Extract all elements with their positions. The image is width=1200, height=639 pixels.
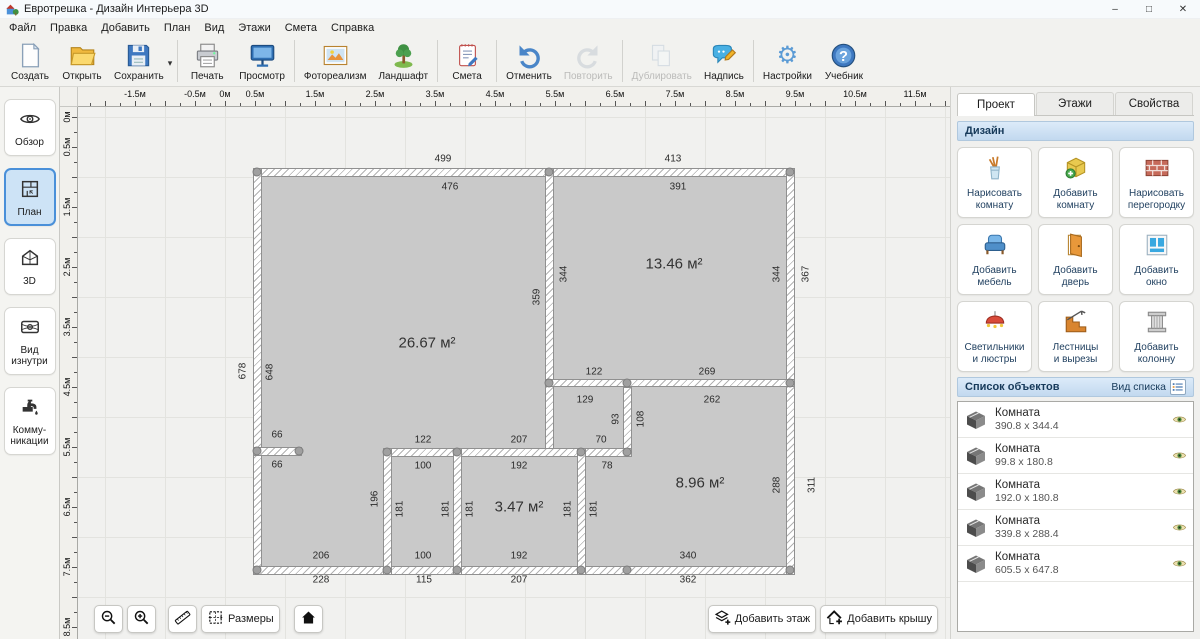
add-floor-button[interactable]: Добавить этаж	[708, 605, 816, 633]
ruler-label: 10.5м	[843, 89, 867, 99]
sidebar-item-3d-label: 3D	[23, 276, 36, 288]
minimize-button[interactable]: –	[1098, 0, 1132, 18]
design-section-header: Дизайн	[957, 121, 1194, 141]
duplicate-button: Дублировать	[626, 40, 698, 83]
column-icon	[1144, 309, 1170, 338]
ruler-label: 2.5м	[62, 258, 72, 277]
ruler-label: 1.5м	[306, 89, 325, 99]
menu-item-2[interactable]: Добавить	[94, 21, 157, 35]
wall-handle[interactable]	[623, 448, 632, 457]
dimension-label: 181	[395, 501, 406, 518]
ruler-horizontal: -1.5м-0.5м0м0.5м1.5м2.5м3.5м4.5м5.5м6.5м…	[78, 87, 950, 107]
dimension-label: 181	[465, 501, 476, 518]
menu-item-7[interactable]: Справка	[324, 21, 381, 35]
dimension-label: 192	[511, 551, 528, 562]
print-button-label: Печать	[191, 71, 224, 82]
dimension-label: 196	[370, 491, 381, 508]
dimension-label: 206	[313, 551, 330, 562]
design-buttons: НарисоватькомнатуДобавитькомнатуНарисова…	[957, 147, 1194, 372]
plan-canvas[interactable]: 4994134763911222691292626612220770661001…	[60, 87, 950, 639]
toolbar-separator	[753, 40, 754, 82]
faucet-icon	[19, 396, 41, 421]
wall-handle[interactable]	[383, 566, 392, 575]
room-object-icon	[964, 480, 988, 504]
wall-handle[interactable]	[253, 168, 262, 177]
object-list: Комната390.8 x 344.4Комната99.8 x 180.8К…	[957, 401, 1194, 632]
undo-icon	[515, 42, 543, 70]
wall[interactable]	[577, 448, 586, 575]
stairs-icon	[1063, 309, 1089, 338]
landscape-button-label: Ландшафт	[378, 71, 428, 82]
add-room-icon	[1063, 155, 1089, 184]
ruler-label: 3.5м	[62, 318, 72, 337]
ruler-label: 4.5м	[486, 89, 505, 99]
object-list-item[interactable]: Комната605.5 x 647.8	[958, 546, 1193, 582]
svg-text:?: ?	[839, 49, 848, 65]
dimension-label: 359	[532, 289, 543, 306]
room-area-label: 3.47 м²	[495, 499, 544, 516]
add-door-button[interactable]: Добавитьдверь	[1038, 224, 1113, 295]
wall-handle[interactable]	[577, 566, 586, 575]
ruler-label: 6.5м	[62, 498, 72, 517]
menu-item-6[interactable]: Смета	[278, 21, 324, 35]
object-name: Комната	[995, 406, 1172, 420]
app-icon	[6, 3, 19, 16]
object-list-item[interactable]: Комната339.8 x 288.4	[958, 510, 1193, 546]
dimension-label: 476	[442, 182, 459, 193]
dimension-label: 129	[577, 395, 594, 406]
list-view-icon[interactable]	[1170, 379, 1186, 395]
object-dimensions: 339.8 x 288.4	[995, 528, 1172, 541]
add-floor-icon	[714, 609, 731, 629]
add-door-button-label: Добавитьдверь	[1053, 265, 1097, 289]
tab-floors[interactable]: Этажи	[1036, 92, 1114, 115]
objects-title: Список объектов	[965, 381, 1059, 393]
dimension-label: 70	[595, 435, 606, 446]
tab-properties[interactable]: Свойства	[1115, 92, 1193, 115]
dimension-label: 181	[563, 501, 574, 518]
wall-handle[interactable]	[295, 447, 304, 456]
photo-icon	[321, 42, 349, 70]
wall[interactable]	[623, 387, 632, 457]
photorealism-button[interactable]: Фотореализм	[298, 40, 373, 83]
visibility-eye-icon[interactable]	[1172, 484, 1187, 499]
save-button-label: Сохранить	[114, 71, 164, 82]
ruler-button[interactable]	[168, 605, 197, 633]
dimension-label: 115	[416, 575, 432, 586]
object-name: Комната	[995, 478, 1172, 492]
wall-handle[interactable]	[786, 566, 795, 575]
undo-button-label: Отменить	[506, 71, 552, 82]
tutorial-button-label: Учебник	[825, 71, 863, 82]
sidebar-item-communications-label: Комму-никации	[10, 425, 48, 448]
ruler-label: 8.5м	[62, 618, 72, 637]
lights-button[interactable]: Светильникии люстры	[957, 301, 1032, 372]
add-roof-button[interactable]: Добавить крышу	[820, 605, 938, 633]
dimension-label: 344	[772, 266, 783, 283]
room-area-label: 13.46 м²	[645, 256, 702, 273]
zoom-out-icon	[100, 609, 117, 629]
door-icon	[1063, 232, 1089, 261]
room-object-icon	[964, 444, 988, 468]
toolbar-separator	[437, 40, 438, 82]
dimension-label: 192	[511, 461, 528, 472]
ruler-label: 0м	[219, 89, 230, 99]
toolbar-separator	[177, 40, 178, 82]
redo-button: Повторить	[558, 40, 619, 83]
eye-icon	[19, 108, 41, 133]
design-title: Дизайн	[965, 125, 1004, 137]
wall[interactable]	[786, 168, 795, 575]
ruler-label: 11.5м	[903, 89, 926, 99]
dimension-label: 207	[511, 435, 528, 446]
dimension-label: 78	[601, 461, 612, 472]
toolbar-separator	[294, 40, 295, 82]
maximize-button[interactable]: □	[1132, 0, 1166, 18]
title-bar: Евротрешка - Дизайн Интерьера 3D – □ ✕	[0, 0, 1200, 19]
room-object-icon	[964, 408, 988, 432]
add-floor-button-label: Добавить этаж	[735, 613, 810, 625]
dimension-label: 108	[636, 411, 647, 428]
notepad-icon	[453, 42, 481, 70]
dimensions-button[interactable]: Размеры	[201, 605, 280, 633]
ruler-label: 3.5м	[426, 89, 445, 99]
objects-section-header: Список объектов Вид списка	[957, 377, 1194, 397]
wall[interactable]	[253, 168, 795, 177]
view-sidebar: ОбзорПлан3DВидизнутриКомму-никации	[0, 87, 60, 639]
ruler-label: 7.5м	[666, 89, 685, 99]
dimension-label: 93	[611, 413, 622, 424]
label-button[interactable]: Надпись	[698, 40, 750, 83]
visibility-eye-icon[interactable]	[1172, 556, 1187, 571]
dimension-label: 340	[680, 551, 697, 562]
menu-item-0[interactable]: Файл	[2, 21, 43, 35]
object-dimensions: 99.8 x 180.8	[995, 456, 1172, 469]
add-roof-button-label: Добавить крышу	[847, 613, 932, 625]
wall[interactable]	[545, 379, 795, 387]
draw-room-button-label: Нарисоватькомнату	[967, 188, 1022, 212]
add-roof-icon	[826, 609, 843, 629]
open-button-label: Открыть	[62, 71, 101, 82]
room-area-label: 26.67 м²	[398, 335, 455, 352]
wall-handle[interactable]	[623, 566, 632, 575]
sidebar-item-overview[interactable]: Обзор	[4, 99, 56, 156]
wall-handle[interactable]	[545, 168, 554, 177]
dimension-label: 367	[801, 266, 812, 283]
duplicate-button-label: Дублировать	[632, 71, 692, 82]
close-button[interactable]: ✕	[1166, 0, 1200, 18]
save-button[interactable]: Сохранить	[108, 40, 170, 83]
object-dimensions: 605.5 x 647.8	[995, 564, 1172, 577]
dimensions-button-label: Размеры	[228, 613, 274, 625]
right-panel: ПроектЭтажиСвойства Дизайн Нарисоватьком…	[950, 87, 1200, 639]
object-name: Комната	[995, 442, 1172, 456]
lights-button-label: Светильникии люстры	[965, 342, 1025, 366]
wall[interactable]	[253, 168, 262, 575]
interior-icon	[19, 316, 41, 341]
ruler-label: 7.5м	[62, 558, 72, 577]
dimension-label: 678	[238, 363, 249, 380]
window-title: Евротрешка - Дизайн Интерьера 3D	[24, 3, 209, 15]
home-button[interactable]	[294, 605, 323, 633]
add-room-button[interactable]: Добавитькомнату	[1038, 147, 1113, 218]
label-button-label: Надпись	[704, 71, 744, 82]
object-list-item[interactable]: Комната390.8 x 344.4	[958, 402, 1193, 438]
add-furniture-button-label: Добавитьмебель	[972, 265, 1016, 289]
dims-icon	[207, 609, 224, 629]
open-button[interactable]: Открыть	[56, 40, 108, 83]
save-dropdown-arrow[interactable]: ▾	[168, 58, 173, 69]
wall-handle[interactable]	[623, 379, 632, 388]
sidebar-item-plan-label: План	[17, 207, 41, 219]
tree-icon	[389, 42, 417, 70]
create-button[interactable]: Создать	[4, 40, 56, 83]
estimate-button[interactable]: Смета	[441, 40, 493, 83]
dimension-label: 66	[271, 430, 282, 441]
dimension-label: 344	[559, 266, 570, 283]
wall-handle[interactable]	[453, 448, 462, 457]
dimension-label: 181	[441, 501, 452, 518]
dimension-label: 207	[511, 575, 528, 586]
ruler-label: 8.5м	[726, 89, 745, 99]
dimension-label: 122	[415, 435, 432, 446]
dimension-label: 413	[665, 154, 682, 165]
zoom-out-button[interactable]	[94, 605, 123, 633]
menu-item-1[interactable]: Правка	[43, 21, 94, 35]
dimension-label: 100	[415, 461, 432, 472]
toolbar-separator	[496, 40, 497, 82]
open-folder-icon	[68, 42, 96, 70]
dimension-label: 648	[265, 364, 276, 381]
dimension-label: 100	[415, 551, 432, 562]
menu-item-3[interactable]: План	[157, 21, 198, 35]
object-dimensions: 390.8 x 344.4	[995, 420, 1172, 433]
ruler-label: 5.5м	[546, 89, 565, 99]
draw-room-icon	[982, 155, 1008, 184]
printer-icon	[193, 42, 221, 70]
wall-handle[interactable]	[253, 566, 262, 575]
monitor-icon	[248, 42, 276, 70]
object-dimensions: 192.0 x 180.8	[995, 492, 1172, 505]
settings-button[interactable]: ⚙Настройки	[757, 40, 818, 83]
ruler-label: 5.5м	[62, 438, 72, 457]
wall-handle[interactable]	[786, 379, 795, 388]
print-button[interactable]: Печать	[181, 40, 233, 83]
draw-partition-button[interactable]: Нарисоватьперегородку	[1119, 147, 1194, 218]
house3d-icon	[19, 247, 41, 272]
draw-partition-button-label: Нарисоватьперегородку	[1128, 188, 1185, 212]
dimension-label: 362	[680, 575, 697, 586]
note-icon	[710, 42, 738, 70]
wall-handle[interactable]	[253, 447, 262, 456]
chandelier-icon	[982, 309, 1008, 338]
settings-button-label: Настройки	[763, 71, 812, 82]
sidebar-item-communications[interactable]: Комму-никации	[4, 387, 56, 455]
wall[interactable]	[545, 168, 554, 457]
visibility-eye-icon[interactable]	[1172, 448, 1187, 463]
menu-item-5[interactable]: Этажи	[231, 21, 277, 35]
wall[interactable]	[453, 448, 462, 575]
add-column-button[interactable]: Добавитьколонну	[1119, 301, 1194, 372]
wall-handle[interactable]	[545, 379, 554, 388]
object-name: Комната	[995, 550, 1172, 564]
view-list-control[interactable]: Вид списка	[1111, 379, 1186, 395]
preview-button[interactable]: Просмотр	[233, 40, 291, 83]
visibility-eye-icon[interactable]	[1172, 520, 1187, 535]
wall[interactable]	[383, 448, 632, 457]
tab-project[interactable]: Проект	[957, 93, 1035, 116]
add-column-button-label: Добавитьколонну	[1134, 342, 1178, 366]
dimension-label: 269	[699, 367, 716, 378]
landscape-button[interactable]: Ландшафт	[372, 40, 434, 83]
plan-icon	[19, 178, 41, 203]
wall-handle[interactable]	[577, 448, 586, 457]
add-room-button-label: Добавитькомнату	[1053, 188, 1097, 212]
menu-bar: ФайлПравкаДобавитьПланВидЭтажиСметаСправ…	[0, 19, 1200, 36]
undo-button[interactable]: Отменить	[500, 40, 558, 83]
furniture-icon	[982, 232, 1008, 261]
sidebar-item-3d[interactable]: 3D	[4, 238, 56, 295]
draw-room-button[interactable]: Нарисоватькомнату	[957, 147, 1032, 218]
dimension-label: 311	[807, 477, 818, 493]
dimension-label: 499	[435, 154, 452, 165]
window-icon	[1144, 232, 1170, 261]
redo-icon	[574, 42, 602, 70]
zoom-in-icon	[133, 609, 150, 629]
add-window-button-label: Добавитьокно	[1134, 265, 1178, 289]
room-area-label: 8.96 м²	[676, 475, 725, 492]
dimension-label: 66	[271, 460, 282, 471]
photorealism-button-label: Фотореализм	[304, 71, 367, 82]
sidebar-item-interior-label: Видизнутри	[11, 345, 47, 368]
dimension-label: 391	[670, 182, 687, 193]
toolbar-separator	[622, 40, 623, 82]
new-file-icon	[16, 42, 44, 70]
ruler-label: 9.5м	[786, 89, 805, 99]
visibility-eye-icon[interactable]	[1172, 412, 1187, 427]
object-list-item[interactable]: Комната99.8 x 180.8	[958, 438, 1193, 474]
wall-handle[interactable]	[453, 566, 462, 575]
partition-icon	[1144, 155, 1170, 184]
create-button-label: Создать	[11, 71, 49, 82]
wall[interactable]	[383, 448, 392, 575]
dimension-label: 262	[704, 395, 721, 406]
ruler-label: 6.5м	[606, 89, 625, 99]
tutorial-button[interactable]: ?Учебник	[818, 40, 870, 83]
dimension-label: 228	[313, 575, 330, 586]
menu-item-4[interactable]: Вид	[197, 21, 231, 35]
zoom-in-button[interactable]	[127, 605, 156, 633]
estimate-button-label: Смета	[452, 71, 481, 82]
dimension-label: 288	[772, 477, 783, 494]
room-object-icon	[964, 516, 988, 540]
add-furniture-button[interactable]: Добавитьмебель	[957, 224, 1032, 295]
wall-handle[interactable]	[383, 448, 392, 457]
ruler-vertical: 0м0.5м1.5м2.5м3.5м4.5м5.5м6.5м7.5м8.5м	[60, 107, 78, 639]
redo-button-label: Повторить	[564, 71, 613, 82]
ruler-label: 0м	[62, 111, 72, 122]
room-object-icon	[964, 552, 988, 576]
ruler-label: 1.5м	[62, 198, 72, 217]
sidebar-item-overview-label: Обзор	[15, 137, 44, 149]
view-list-label: Вид списка	[1111, 381, 1166, 393]
panel-tabs: ПроектЭтажиСвойства	[957, 92, 1194, 116]
dimension-label: 122	[586, 367, 603, 378]
object-name: Комната	[995, 514, 1172, 528]
ruler-corner	[60, 87, 78, 107]
save-floppy-icon	[125, 42, 153, 70]
floor-plan: 4994134763911222691292626612220770661001…	[60, 87, 950, 639]
preview-button-label: Просмотр	[239, 71, 285, 82]
ruler-label: -0.5м	[184, 89, 206, 99]
home-icon	[300, 609, 317, 629]
stairs-button-label: Лестницыи вырезы	[1053, 342, 1099, 366]
toolbar: СоздатьОткрытьСохранить▾ПечатьПросмотрФо…	[0, 36, 1200, 87]
help-icon: ?	[830, 42, 858, 70]
add-window-button[interactable]: Добавитьокно	[1119, 224, 1194, 295]
ruler-label: 4.5м	[62, 378, 72, 397]
gear-icon: ⚙	[773, 42, 801, 70]
dimension-label: 181	[589, 501, 600, 518]
ruler-icon	[174, 609, 191, 629]
sidebar-item-interior[interactable]: Видизнутри	[4, 307, 56, 375]
wall-handle[interactable]	[786, 168, 795, 177]
ruler-label: 0.5м	[62, 138, 72, 157]
stairs-button[interactable]: Лестницыи вырезы	[1038, 301, 1113, 372]
object-list-item[interactable]: Комната192.0 x 180.8	[958, 474, 1193, 510]
sidebar-item-plan[interactable]: План	[4, 168, 56, 227]
ruler-label: -1.5м	[124, 89, 146, 99]
duplicate-icon	[648, 42, 676, 70]
ruler-label: 2.5м	[366, 89, 385, 99]
ruler-label: 0.5м	[246, 89, 265, 99]
